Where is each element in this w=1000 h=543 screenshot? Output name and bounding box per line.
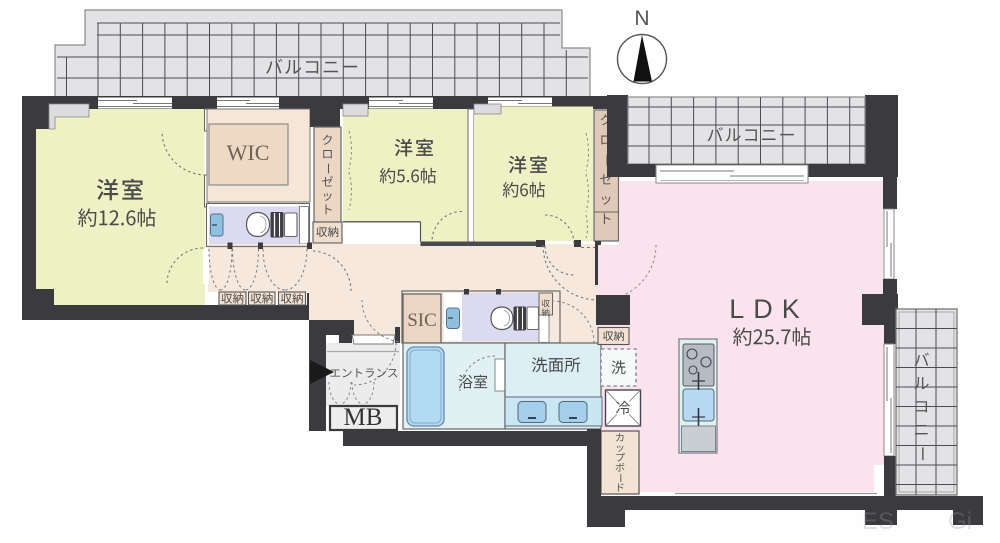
svg-text:MB: MB: [344, 404, 383, 431]
svg-text:SIC: SIC: [407, 310, 437, 331]
svg-text:WIC: WIC: [227, 140, 270, 165]
svg-text:N: N: [634, 7, 649, 30]
svg-text:ES: ES: [862, 508, 894, 535]
svg-text:LDK: LDK: [729, 294, 809, 324]
svg-text:Gi: Gi: [948, 508, 972, 535]
